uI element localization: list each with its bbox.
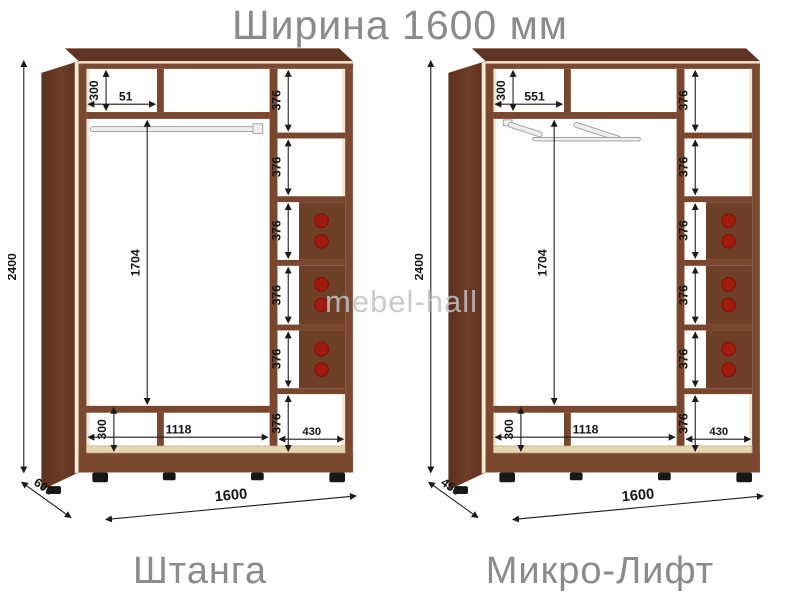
main-width-label: 1118 <box>573 422 599 436</box>
door-track <box>493 446 752 453</box>
drawer-dot <box>315 214 329 228</box>
drawer-dot <box>722 278 736 292</box>
drawer-fronts <box>706 202 752 388</box>
top-shelf <box>493 112 676 119</box>
drawer-dot <box>722 234 736 248</box>
column-divider <box>677 69 685 453</box>
dimension-height: 2400 <box>8 61 24 472</box>
bottom-section-label: 300 <box>95 419 109 440</box>
top-shelf <box>86 112 269 119</box>
drawer-dot <box>315 342 329 356</box>
side-panel-edge <box>482 62 486 474</box>
column-width-label: 430 <box>302 426 321 438</box>
bottom-section-label: 300 <box>502 419 516 440</box>
drawer-dot <box>315 363 329 377</box>
drawer-dot <box>722 214 736 228</box>
right-wardrobe-diagram: 2400 300 551 1704 300 1118 <box>415 18 800 542</box>
shelf-height-label: 376 <box>269 285 283 306</box>
width-label: 1600 <box>621 486 655 505</box>
hanging-height-label: 1704 <box>128 249 142 276</box>
drawer-fronts <box>299 202 345 388</box>
shelf-height-label: 376 <box>269 90 283 111</box>
screenshot-root: Ширина 1600 мм <box>0 0 800 600</box>
width-label: 1600 <box>214 486 248 505</box>
left-wardrobe-diagram: 2400 300 51 1704 300 1118 <box>8 18 400 542</box>
side-panel-edge <box>75 62 79 474</box>
drawer-dot <box>722 363 736 377</box>
column-width-label: 430 <box>709 426 728 438</box>
top-panel <box>65 48 353 61</box>
top-width-label: 51 <box>119 89 133 103</box>
shelf-height-label: 376 <box>676 220 690 241</box>
height-label: 2400 <box>8 253 19 280</box>
drawer-dot <box>722 298 736 312</box>
shelf-height-label: 376 <box>269 220 283 241</box>
top-panel <box>472 48 760 61</box>
hanging-height-label: 1704 <box>535 249 549 276</box>
shelf-height-label: 376 <box>269 348 283 369</box>
drawer-dot <box>315 298 329 312</box>
feet <box>47 472 345 494</box>
dimension-height: 2400 <box>415 61 431 472</box>
drawer-dot <box>315 234 329 248</box>
feet <box>454 472 752 494</box>
shelf-height-label: 376 <box>676 90 690 111</box>
dimension-depth: 450 <box>429 475 478 517</box>
height-label: 2400 <box>415 253 426 280</box>
left-wardrobe-caption: Штанга <box>0 550 400 593</box>
right-wardrobe-caption: Микро-Лифт <box>400 550 800 593</box>
shelf-height-label: 376 <box>676 348 690 369</box>
shelf-height-label: 376 <box>269 156 283 177</box>
top-width-label: 551 <box>524 89 545 103</box>
top-divider <box>564 69 571 112</box>
drawer-dot <box>315 278 329 292</box>
top-section-label: 300 <box>494 80 508 101</box>
dimension-width: 1600 <box>513 486 763 519</box>
top-divider <box>157 69 164 112</box>
top-section-label: 300 <box>87 80 101 101</box>
side-panel <box>448 61 485 490</box>
side-panel <box>41 61 78 490</box>
dimension-width: 1600 <box>106 486 356 519</box>
interior-left-edge <box>493 69 496 453</box>
drawer-dot <box>722 342 736 356</box>
interior-left-edge <box>86 69 89 453</box>
shelf-height-label: 376 <box>269 413 283 434</box>
shelf-height-label: 376 <box>676 285 690 306</box>
shelf-height-label: 376 <box>676 156 690 177</box>
main-width-label: 1118 <box>166 422 192 436</box>
column-divider <box>270 69 278 453</box>
shelf-height-label: 376 <box>676 413 690 434</box>
door-track <box>86 446 345 453</box>
dimension-depth: 600 <box>22 475 71 517</box>
